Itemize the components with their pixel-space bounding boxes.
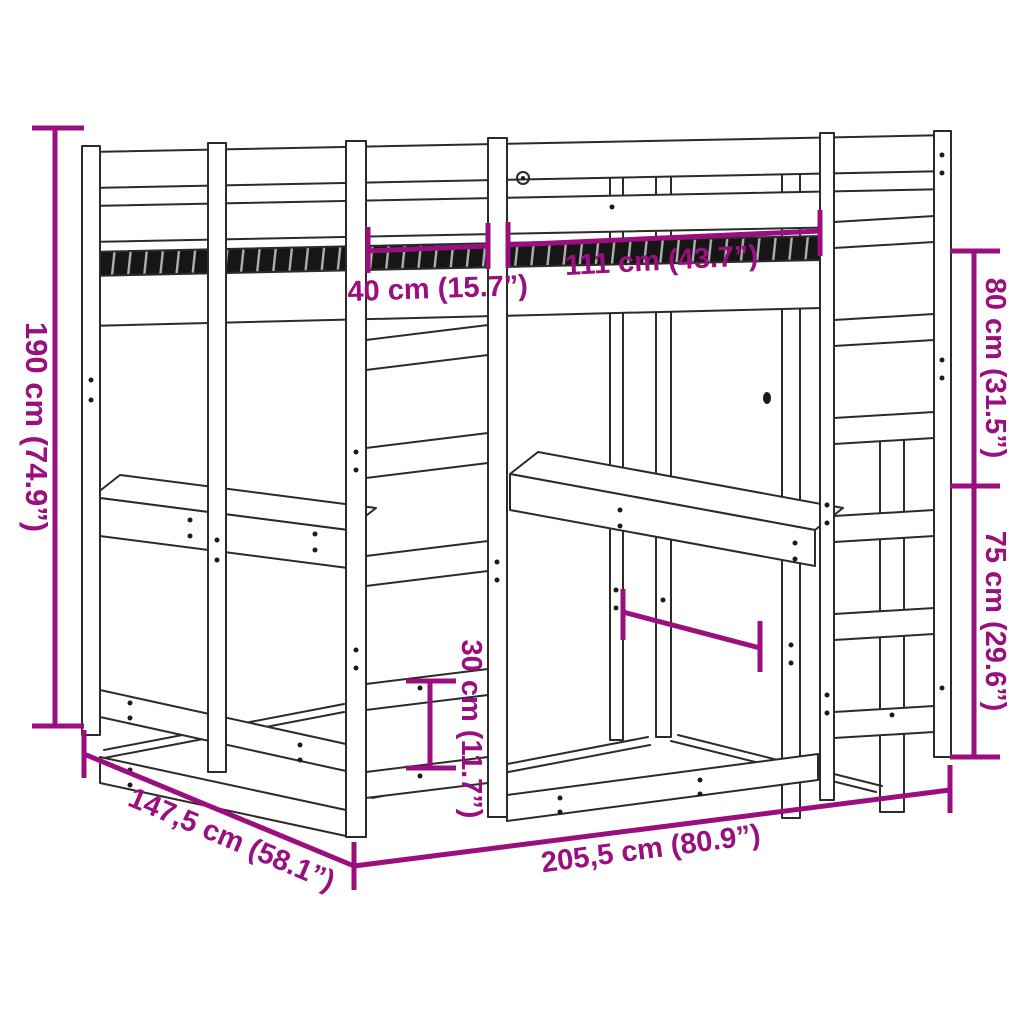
- post-back-left: [82, 146, 100, 735]
- dimension-desk-depth-line: [623, 589, 760, 672]
- dimension-total-height: 190 cm (74.9”): [19, 128, 84, 726]
- shelf-board-2: [366, 433, 488, 478]
- shelf-board-3: [366, 541, 488, 586]
- dimension-lower-right-height: 75 cm (29.6”): [950, 486, 1011, 757]
- upper-right-height-label: 80 cm (31.5”): [979, 278, 1011, 459]
- ladder-rung-6: [834, 706, 934, 738]
- loft-bed-diagram: 190 cm (74.9”) 40 cm (15.7”) 111 cm (43.…: [0, 0, 1024, 1024]
- post-front-center: [488, 138, 507, 817]
- ladder-rung-3: [834, 412, 934, 444]
- ladder-rung-2: [834, 314, 934, 346]
- ladder-rung-4: [834, 510, 934, 542]
- shelf-board-1: [366, 325, 488, 370]
- ladder-right-rail: [934, 131, 951, 757]
- lower-right-height-label: 75 cm (29.6”): [979, 531, 1011, 712]
- shelf-width-label: 40 cm (15.7”): [347, 270, 529, 308]
- product-dimension-diagram: 190 cm (74.9”) 40 cm (15.7”) 111 cm (43.…: [0, 0, 1024, 1024]
- ladder-rung-5: [834, 608, 934, 640]
- ladder-rung-1: [834, 216, 934, 248]
- dimension-upper-right-height: 80 cm (31.5”): [950, 251, 1011, 486]
- post-front-left: [346, 141, 366, 837]
- shelf-gap-label: 30 cm (11.7”): [455, 640, 487, 819]
- post-left-middle: [208, 143, 226, 772]
- total-height-label: 190 cm (74.9”): [19, 322, 54, 532]
